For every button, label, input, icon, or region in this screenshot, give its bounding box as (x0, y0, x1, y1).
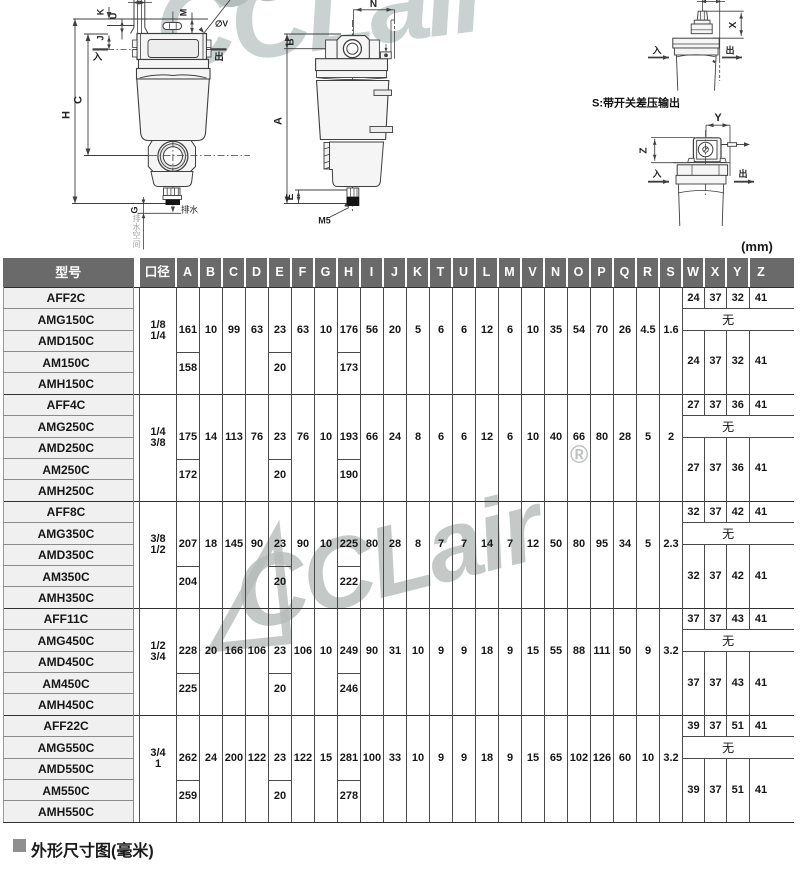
svg-text:∅V: ∅V (215, 19, 228, 29)
svg-text:水: 水 (133, 222, 141, 232)
svg-text:间: 间 (133, 240, 141, 249)
svg-text:M: M (178, 9, 188, 17)
svg-text:出: 出 (738, 168, 747, 179)
svg-text:排: 排 (133, 213, 141, 223)
svg-text:E: E (285, 193, 296, 200)
svg-text:入: 入 (92, 52, 103, 63)
svg-text:M5: M5 (318, 216, 331, 226)
svg-text:J: J (96, 35, 106, 40)
svg-text:空: 空 (133, 230, 141, 240)
svg-text:K: K (96, 8, 106, 15)
svg-text:U: U (109, 13, 119, 20)
svg-text:Z: Z (639, 147, 650, 153)
svg-text:出: 出 (725, 45, 734, 56)
svg-text:Y: Y (714, 112, 722, 124)
svg-text:B: B (286, 38, 297, 45)
svg-text:S:带开关差压输出: S:带开关差压输出 (592, 96, 680, 110)
svg-text:G: G (130, 206, 140, 213)
svg-text:H: H (61, 111, 73, 119)
svg-text:X: X (728, 21, 739, 28)
svg-text:排水: 排水 (181, 205, 199, 215)
svg-text:入: 入 (651, 169, 661, 179)
svg-text:出: 出 (214, 51, 224, 63)
svg-text:C: C (73, 96, 85, 104)
svg-text:入: 入 (651, 46, 661, 56)
svg-text:A: A (273, 117, 285, 125)
svg-text:N: N (370, 0, 377, 10)
